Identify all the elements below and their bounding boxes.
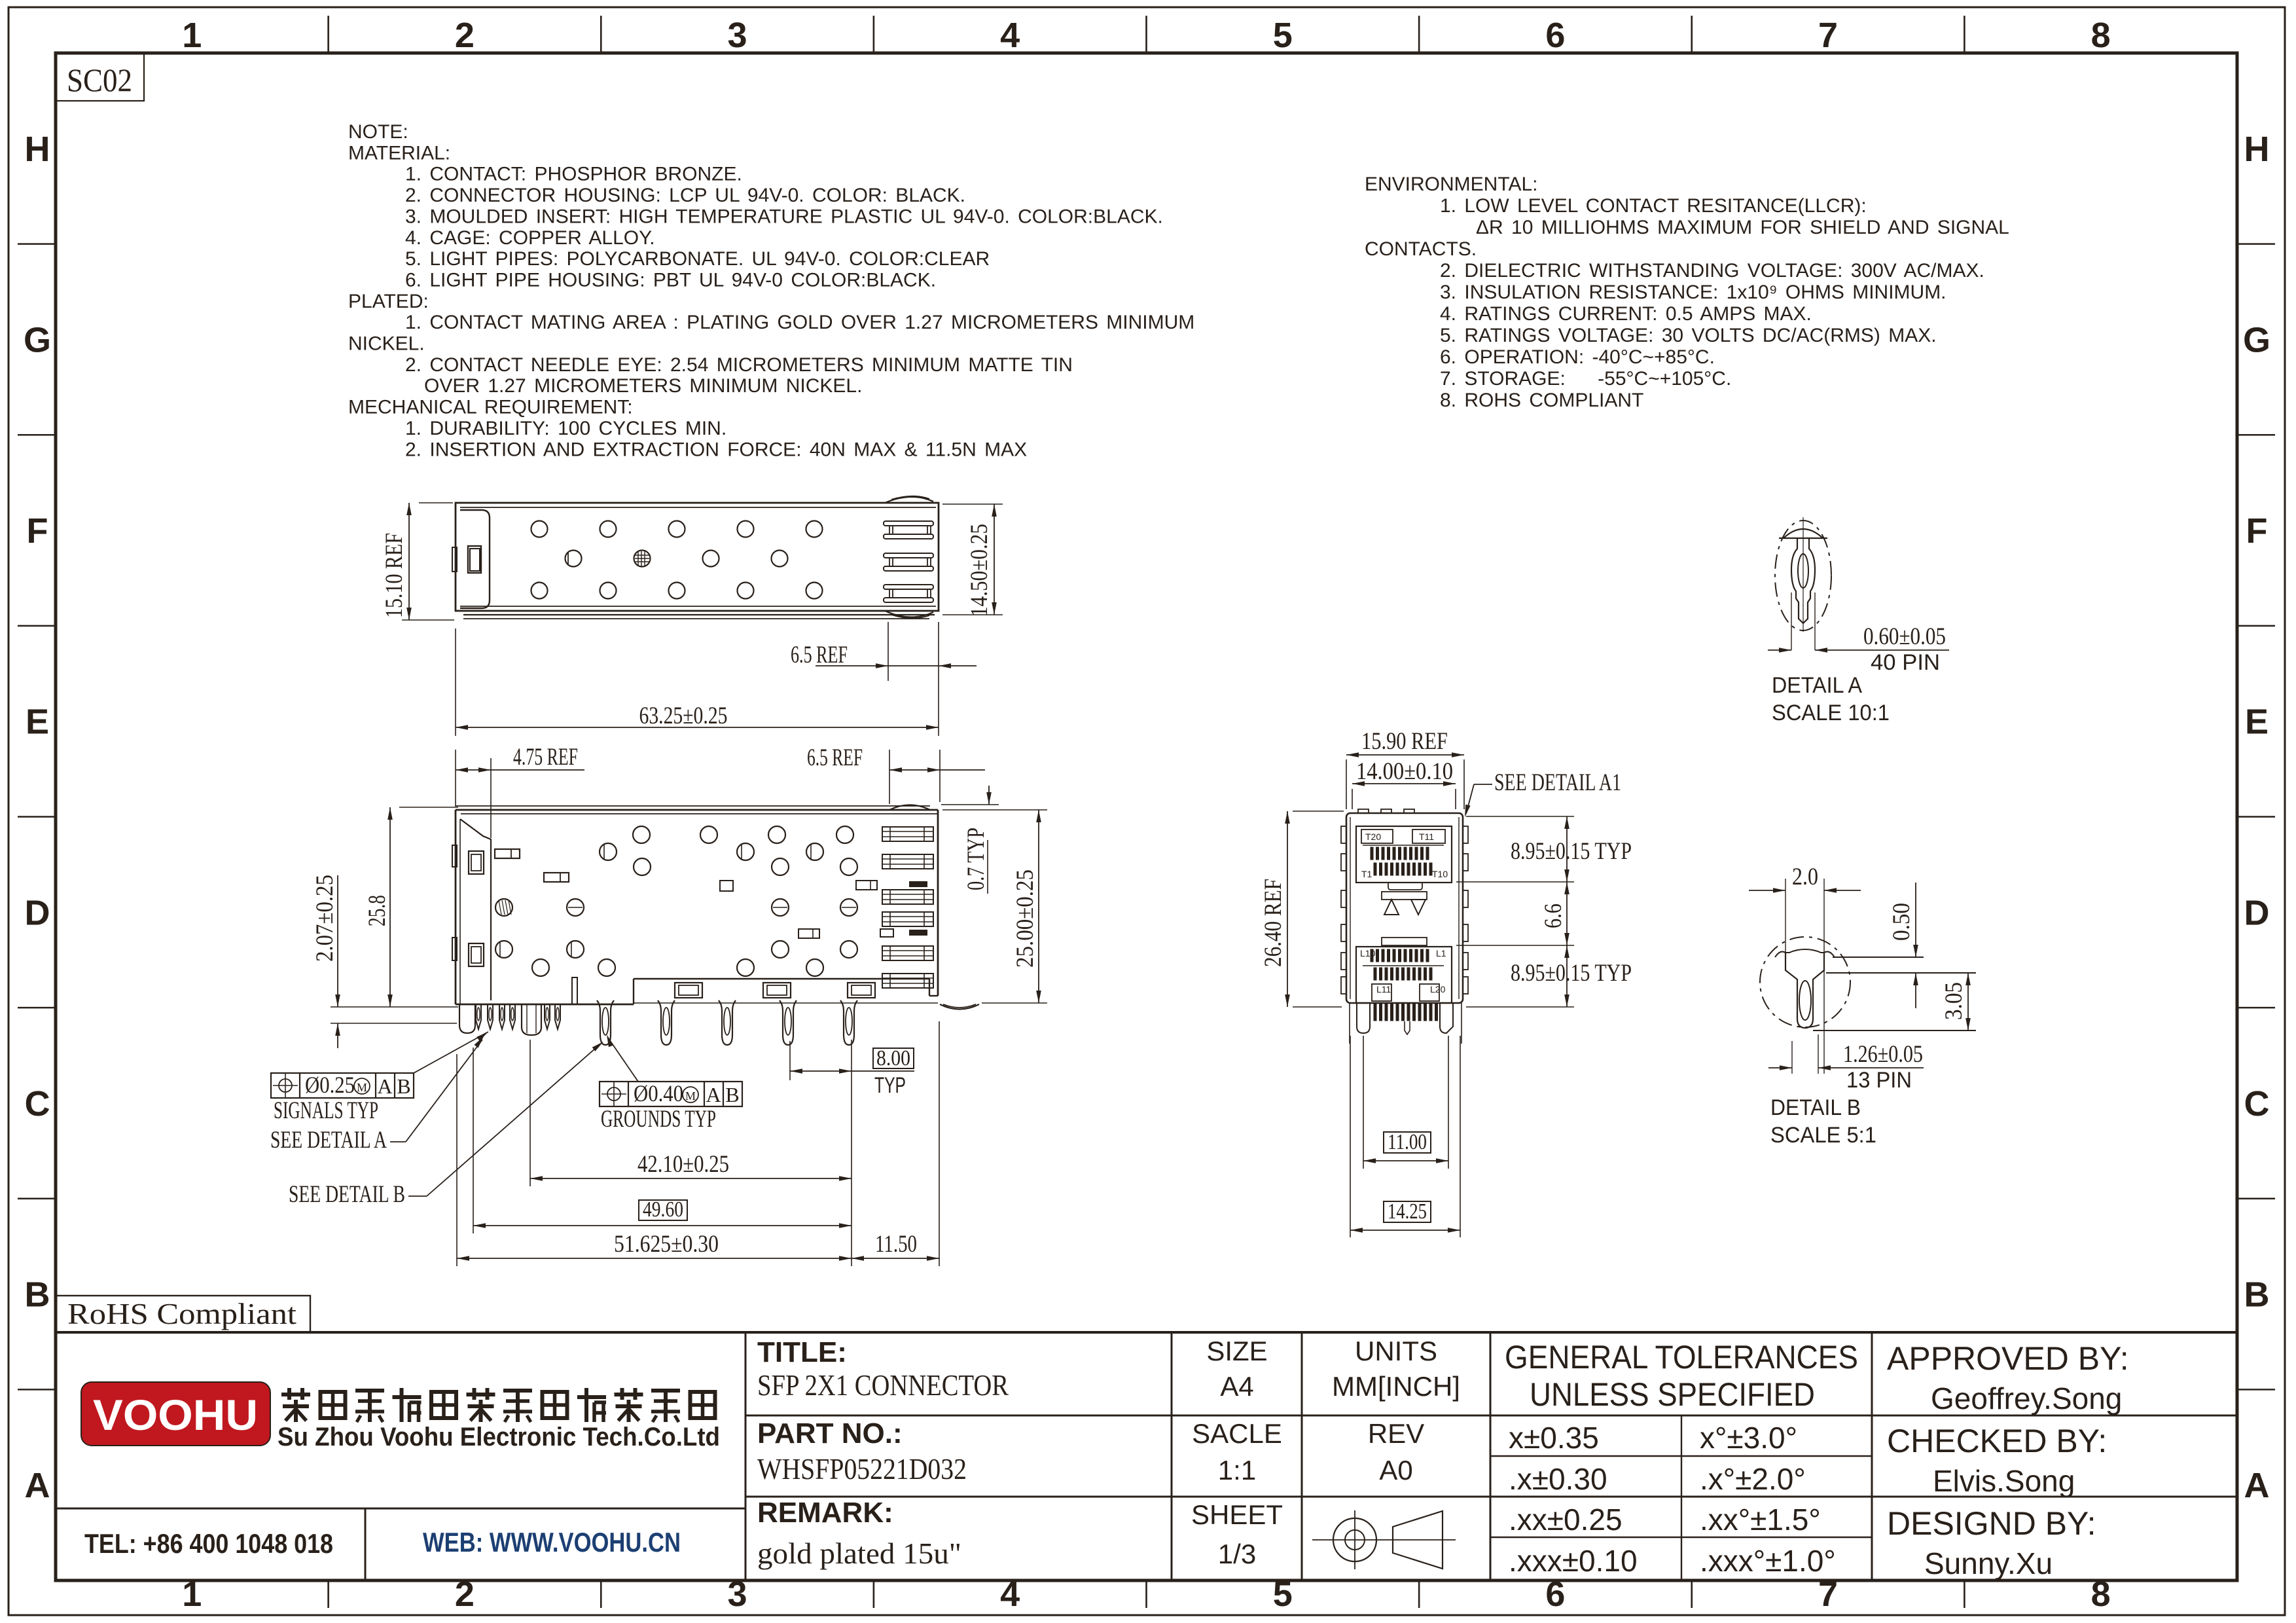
svg-text:ΔR 10 MILLIOHMS MAXIMUM FOR SH: ΔR 10 MILLIOHMS MAXIMUM FOR SHIELD AND S… xyxy=(1476,217,2009,238)
svg-text:5. LIGHT PIPES: POLYCARBONATE.: 5. LIGHT PIPES: POLYCARBONATE. UL 94V-0.… xyxy=(405,248,990,270)
svg-text:8.00: 8.00 xyxy=(876,1046,910,1070)
svg-text:T1: T1 xyxy=(1361,869,1372,879)
svg-text:6.6: 6.6 xyxy=(1540,903,1567,928)
svg-text:14.50±0.25: 14.50±0.25 xyxy=(966,524,993,617)
svg-text:SACLE: SACLE xyxy=(1192,1418,1282,1449)
svg-text:4: 4 xyxy=(1000,16,1020,55)
svg-text:25.00±0.25: 25.00±0.25 xyxy=(1012,869,1039,968)
svg-text:gold plated 15u": gold plated 15u" xyxy=(757,1537,961,1570)
svg-text:4: 4 xyxy=(1000,1575,1020,1614)
svg-text:H: H xyxy=(25,130,50,169)
svg-text:6. LIGHT PIPE HOUSING: PBT UL: 6. LIGHT PIPE HOUSING: PBT UL 94V-0 COLO… xyxy=(405,269,936,291)
svg-text:SFP 2X1 CONNECTOR: SFP 2X1 CONNECTOR xyxy=(757,1368,1009,1402)
svg-text:6. OPERATION: -40°C~+85°C.: 6. OPERATION: -40°C~+85°C. xyxy=(1440,346,1715,368)
svg-text:x°±3.0°: x°±3.0° xyxy=(1700,1421,1797,1455)
svg-text:REV: REV xyxy=(1368,1418,1424,1449)
svg-text:Elvis.Song: Elvis.Song xyxy=(1933,1464,2075,1498)
svg-text:NOTE:: NOTE: xyxy=(348,121,408,143)
svg-text:2.0: 2.0 xyxy=(1792,864,1818,890)
svg-text:1. DURABILITY: 100 CYCLES MIN.: 1. DURABILITY: 100 CYCLES MIN. xyxy=(405,418,726,439)
svg-text:A: A xyxy=(706,1083,721,1106)
svg-text:CONTACTS.: CONTACTS. xyxy=(1365,238,1477,260)
svg-text:7: 7 xyxy=(1818,1575,1838,1614)
svg-text:CHECKED BY:: CHECKED BY: xyxy=(1887,1423,2107,1459)
svg-text:DESIGND BY:: DESIGND BY: xyxy=(1887,1505,2096,1542)
svg-text:x±0.35: x±0.35 xyxy=(1509,1421,1599,1455)
svg-text:7. STORAGE: -55°C~+105°C.: 7. STORAGE: -55°C~+105°C. xyxy=(1440,368,1731,390)
svg-text:.xxx±0.10: .xxx±0.10 xyxy=(1509,1544,1638,1578)
svg-text:A: A xyxy=(25,1466,50,1505)
svg-text:E: E xyxy=(2245,702,2269,742)
svg-text:3: 3 xyxy=(728,16,747,55)
svg-text:GROUNDS TYP: GROUNDS TYP xyxy=(601,1106,716,1133)
svg-text:6.5 REF: 6.5 REF xyxy=(791,642,848,668)
svg-text:3.05: 3.05 xyxy=(1941,982,1967,1020)
svg-text:25.8: 25.8 xyxy=(364,895,391,926)
svg-text:49.60: 49.60 xyxy=(643,1197,683,1222)
svg-text:42.10±0.25: 42.10±0.25 xyxy=(637,1151,729,1178)
svg-text:3. MOULDED INSERT: HIGH TEMPER: 3. MOULDED INSERT: HIGH TEMPERATURE PLAS… xyxy=(405,206,1163,227)
svg-text:B: B xyxy=(397,1074,410,1098)
svg-text:1. CONTACT MATING AREA : PLATI: 1. CONTACT MATING AREA : PLATING GOLD OV… xyxy=(405,312,1194,333)
svg-text:.x±0.30: .x±0.30 xyxy=(1509,1462,1607,1496)
svg-text:14.25: 14.25 xyxy=(1388,1199,1427,1224)
svg-text:5: 5 xyxy=(1273,1575,1293,1614)
svg-text:UNLESS SPECIFIED: UNLESS SPECIFIED xyxy=(1530,1376,1815,1413)
svg-text:REMARK:: REMARK: xyxy=(757,1497,893,1529)
svg-text:L11: L11 xyxy=(1376,984,1391,994)
svg-text:MM[INCH]: MM[INCH] xyxy=(1332,1371,1460,1402)
svg-text:2: 2 xyxy=(455,1575,475,1614)
svg-text:UNITS: UNITS xyxy=(1355,1336,1437,1366)
svg-text:1. LOW LEVEL CONTACT RESITANCE: 1. LOW LEVEL CONTACT RESITANCE(LLCR): xyxy=(1440,195,1867,217)
svg-text:A4: A4 xyxy=(1220,1371,1253,1402)
svg-text:TEL: +86 400 1048 018: TEL: +86 400 1048 018 xyxy=(84,1528,333,1559)
svg-text:2. CONNECTOR HOUSING: LCP UL 9: 2. CONNECTOR HOUSING: LCP UL 94V-0. COLO… xyxy=(405,185,965,206)
svg-text:L1: L1 xyxy=(1436,948,1446,958)
svg-text:0.60±0.05: 0.60±0.05 xyxy=(1863,623,1946,650)
svg-text:6.5 REF: 6.5 REF xyxy=(807,744,863,771)
svg-text:Sunny.Xu: Sunny.Xu xyxy=(1924,1546,2053,1580)
svg-text:F: F xyxy=(2246,511,2268,551)
svg-text:5. RATINGS VOLTAGE: 30 VOLTS D: 5. RATINGS VOLTAGE: 30 VOLTS DC/AC(RMS) … xyxy=(1440,325,1937,346)
svg-text:TYP: TYP xyxy=(874,1073,906,1098)
svg-text:SCALE 5:1: SCALE 5:1 xyxy=(1770,1123,1876,1148)
svg-text:TITLE:: TITLE: xyxy=(757,1336,847,1368)
svg-text:SEE DETAIL B: SEE DETAIL B xyxy=(289,1181,405,1208)
svg-text:MATERIAL:: MATERIAL: xyxy=(348,142,450,164)
svg-text:G: G xyxy=(2243,320,2270,359)
svg-text:Geoffrey.Song: Geoffrey.Song xyxy=(1931,1381,2122,1415)
svg-text:SHEET: SHEET xyxy=(1191,1499,1283,1530)
svg-text:PART NO.:: PART NO.: xyxy=(757,1417,903,1450)
svg-text:8. ROHS COMPLIANT: 8. ROHS COMPLIANT xyxy=(1440,390,1643,411)
svg-text:8.95±0.15 TYP: 8.95±0.15 TYP xyxy=(1511,838,1632,865)
svg-text:13 PIN: 13 PIN xyxy=(1846,1068,1912,1093)
svg-text:H: H xyxy=(2244,130,2270,169)
svg-text:D: D xyxy=(2244,893,2270,932)
svg-text:8: 8 xyxy=(2091,1575,2111,1614)
svg-text:.xx±0.25: .xx±0.25 xyxy=(1509,1503,1623,1537)
svg-text:B: B xyxy=(25,1275,50,1315)
svg-text:40 PIN: 40 PIN xyxy=(1871,650,1940,675)
svg-text:D: D xyxy=(25,893,50,932)
svg-text:.x°±2.0°: .x°±2.0° xyxy=(1700,1462,1806,1496)
svg-text:GENERAL TOLERANCES: GENERAL TOLERANCES xyxy=(1505,1339,1858,1376)
svg-text:SIGNALS TYP: SIGNALS TYP xyxy=(274,1097,378,1124)
svg-text:63.25±0.25: 63.25±0.25 xyxy=(639,702,728,729)
svg-text:3. INSULATION RESISTANCE: 1x10: 3. INSULATION RESISTANCE: 1x10⁹ OHMS MIN… xyxy=(1440,282,1946,303)
svg-text:8: 8 xyxy=(2091,16,2111,55)
svg-text:C: C xyxy=(2244,1084,2270,1123)
svg-text:T20: T20 xyxy=(1365,831,1381,842)
svg-text:Su Zhou Voohu Electronic Tech.: Su Zhou Voohu Electronic Tech.Co.Ltd xyxy=(278,1423,720,1451)
svg-text:L20: L20 xyxy=(1430,984,1446,994)
svg-text:1: 1 xyxy=(182,16,202,55)
svg-text:0.7 TYP: 0.7 TYP xyxy=(963,828,990,890)
svg-text:SIZE: SIZE xyxy=(1206,1336,1267,1366)
svg-text:DETAIL A: DETAIL A xyxy=(1772,673,1862,698)
svg-text:11.50: 11.50 xyxy=(875,1231,917,1258)
svg-text:2. DIELECTRIC WITHSTANDING VOL: 2. DIELECTRIC WITHSTANDING VOLTAGE: 300V… xyxy=(1440,260,1984,282)
svg-text:4.75 REF: 4.75 REF xyxy=(513,744,578,771)
svg-text:E: E xyxy=(26,702,49,742)
svg-text:1/3: 1/3 xyxy=(1218,1539,1256,1569)
svg-text:4. RATINGS CURRENT: 0.5 AMPS M: 4. RATINGS CURRENT: 0.5 AMPS MAX. xyxy=(1440,303,1812,325)
svg-text:ENVIRONMENTAL:: ENVIRONMENTAL: xyxy=(1365,173,1537,195)
svg-text:B: B xyxy=(725,1083,739,1106)
svg-text:6: 6 xyxy=(1545,1575,1565,1614)
svg-text:26.40 REF: 26.40 REF xyxy=(1260,879,1287,967)
svg-text:3: 3 xyxy=(728,1575,747,1614)
svg-text:APPROVED BY:: APPROVED BY: xyxy=(1887,1340,2129,1377)
svg-text:15.90 REF: 15.90 REF xyxy=(1361,728,1448,755)
svg-text:11.00: 11.00 xyxy=(1388,1130,1427,1154)
svg-text:0.50: 0.50 xyxy=(1888,903,1915,941)
svg-text:T10: T10 xyxy=(1432,869,1448,879)
svg-text:1.26±0.05: 1.26±0.05 xyxy=(1843,1041,1923,1068)
svg-text:4. CAGE: COPPER ALLOY.: 4. CAGE: COPPER ALLOY. xyxy=(405,227,655,249)
svg-text:SEE DETAIL A1: SEE DETAIL A1 xyxy=(1494,769,1621,796)
svg-text:14.00±0.10: 14.00±0.10 xyxy=(1356,758,1453,785)
svg-text:.xxx°±1.0°: .xxx°±1.0° xyxy=(1700,1544,1836,1578)
svg-text:SEE DETAIL A: SEE DETAIL A xyxy=(270,1127,387,1154)
svg-text:1: 1 xyxy=(182,1575,202,1614)
svg-text:1. CONTACT: PHOSPHOR BRONZE.: 1. CONTACT: PHOSPHOR BRONZE. xyxy=(405,164,742,185)
svg-text:2: 2 xyxy=(455,16,475,55)
svg-text:M: M xyxy=(685,1089,696,1103)
svg-text:51.625±0.30: 51.625±0.30 xyxy=(614,1231,719,1258)
svg-text:2.07±0.25: 2.07±0.25 xyxy=(312,875,338,962)
svg-text:B: B xyxy=(2244,1275,2270,1315)
svg-text:F: F xyxy=(27,511,48,551)
svg-text:C: C xyxy=(25,1084,50,1123)
svg-text:PLATED:: PLATED: xyxy=(348,291,429,312)
svg-text:OVER 1.27 MICROMETERS MINIMUM: OVER 1.27 MICROMETERS MINIMUM NICKEL. xyxy=(424,375,862,397)
svg-text:A: A xyxy=(2244,1466,2270,1505)
svg-text:A0: A0 xyxy=(1379,1455,1412,1486)
svg-text:M: M xyxy=(357,1081,367,1094)
svg-text:DETAIL B: DETAIL B xyxy=(1770,1095,1861,1120)
svg-text:T11: T11 xyxy=(1419,831,1434,842)
svg-text:8.95±0.15 TYP: 8.95±0.15 TYP xyxy=(1511,960,1632,987)
svg-text:VOOHU: VOOHU xyxy=(93,1391,258,1439)
svg-text:SCALE 10:1: SCALE 10:1 xyxy=(1772,701,1890,725)
svg-text:Ø0.25: Ø0.25 xyxy=(305,1072,355,1098)
svg-text:G: G xyxy=(24,320,51,359)
svg-text:NICKEL.: NICKEL. xyxy=(348,333,425,355)
svg-text:1:1: 1:1 xyxy=(1218,1455,1256,1486)
svg-text:WEB: WWW.VOOHU.CN: WEB: WWW.VOOHU.CN xyxy=(423,1527,681,1558)
svg-text:6: 6 xyxy=(1545,16,1565,55)
svg-text:15.10 REF: 15.10 REF xyxy=(381,533,408,618)
svg-text:WHSFP05221D032: WHSFP05221D032 xyxy=(757,1452,967,1486)
svg-text:5: 5 xyxy=(1273,16,1293,55)
svg-text:.xx°±1.5°: .xx°±1.5° xyxy=(1700,1503,1821,1537)
svg-text:RoHS Compliant: RoHS Compliant xyxy=(67,1297,296,1330)
svg-text:2. INSERTION AND EXTRACTION FO: 2. INSERTION AND EXTRACTION FORCE: 40N M… xyxy=(405,439,1027,460)
svg-text:A: A xyxy=(377,1074,392,1098)
svg-text:SC02: SC02 xyxy=(67,62,132,98)
svg-text:2. CONTACT NEEDLE EYE: 2.54 MI: 2. CONTACT NEEDLE EYE: 2.54 MICROMETERS … xyxy=(405,354,1073,376)
svg-text:Ø0.40: Ø0.40 xyxy=(634,1080,683,1106)
svg-text:MECHANICAL REQUIREMENT:: MECHANICAL REQUIREMENT: xyxy=(348,397,633,418)
svg-text:7: 7 xyxy=(1818,16,1838,55)
